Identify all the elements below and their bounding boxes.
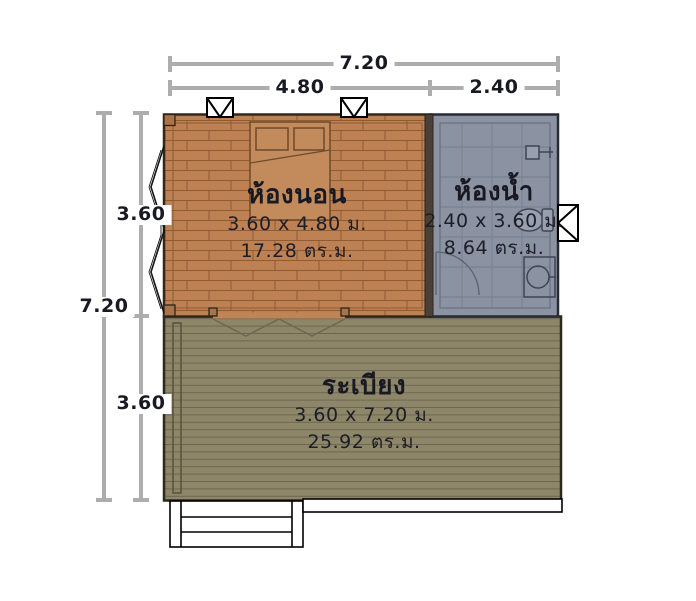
terrace-size: 3.60 x 7.20 ม. (294, 402, 434, 430)
terrace-area: 25.92 ตร.ม. (294, 429, 434, 457)
bedroom-area: 17.28 ตร.ม. (227, 238, 367, 266)
front-step (303, 499, 562, 512)
bedroom-name: ห้องนอน (227, 181, 367, 211)
bathroom-name: ห้องน้ำ (424, 178, 564, 208)
bathroom-label: ห้องน้ำ 2.40 x 3.60 ม. 8.64 ตร.ม. (424, 178, 564, 263)
dim-top-total: 7.20 (334, 54, 395, 74)
dim-left-lower: 3.60 (111, 394, 172, 414)
dim-top-right: 2.40 (464, 78, 525, 98)
floor-plan-page: 7.20 4.80 2.40 7.20 3.60 3.60 ห้องนอน 3.… (0, 0, 696, 601)
stairs-icon (170, 501, 303, 547)
casement-window-icon-left (149, 146, 164, 313)
terrace-name: ระเบียง (294, 372, 434, 402)
dim-top-left: 4.80 (270, 78, 331, 98)
dim-left-total: 7.20 (74, 297, 135, 317)
bedroom-label: ห้องนอน 3.60 x 4.80 ม. 17.28 ตร.ม. (227, 181, 367, 266)
bathroom-size: 2.40 x 3.60 ม. (424, 208, 564, 236)
bedroom-size: 3.60 x 4.80 ม. (227, 211, 367, 239)
dim-left-upper: 3.60 (111, 205, 172, 225)
bathroom-area: 8.64 ตร.ม. (424, 235, 564, 263)
awning-window-icon-top-1 (207, 98, 233, 117)
terrace-label: ระเบียง 3.60 x 7.20 ม. 25.92 ตร.ม. (294, 372, 434, 457)
awning-window-icon-top-2 (341, 98, 367, 117)
